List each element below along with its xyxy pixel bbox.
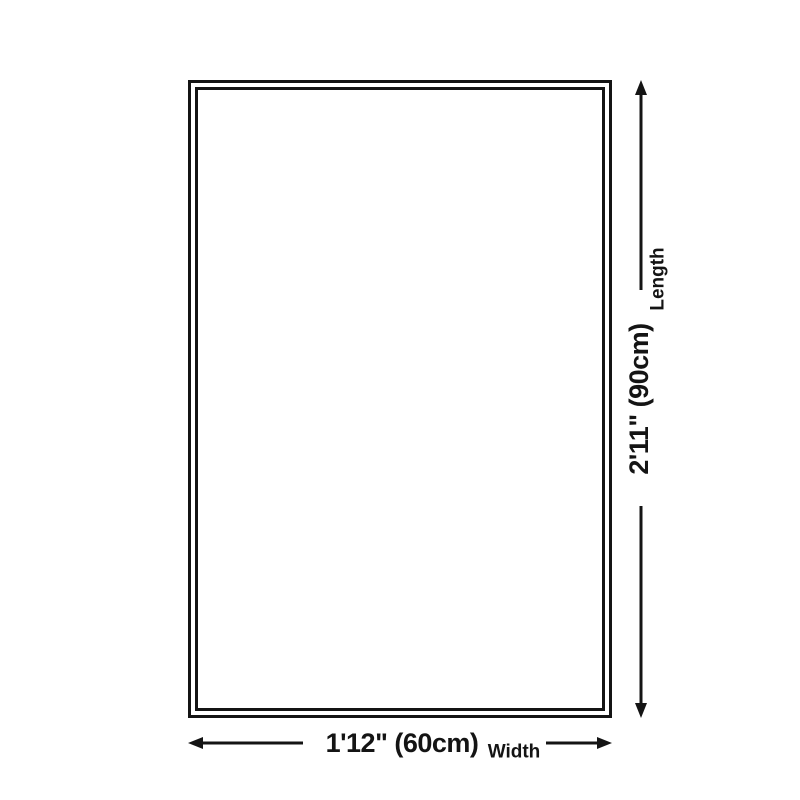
dimension-arrows: [0, 0, 800, 800]
arrow-left-icon: [188, 737, 203, 749]
width-axis-label: Width: [483, 743, 546, 764]
length-dimension-value: 2'11" (90cm): [624, 315, 656, 482]
width-dimension-value: 1'12" (60cm): [318, 728, 487, 760]
length-axis-label: Length: [649, 242, 670, 315]
arrow-down-icon: [635, 703, 647, 718]
arrow-up-icon: [635, 80, 647, 95]
dimension-diagram: 2'11" (90cm) Length 1'12" (60cm) Width: [0, 0, 800, 800]
arrow-right-icon: [597, 737, 612, 749]
